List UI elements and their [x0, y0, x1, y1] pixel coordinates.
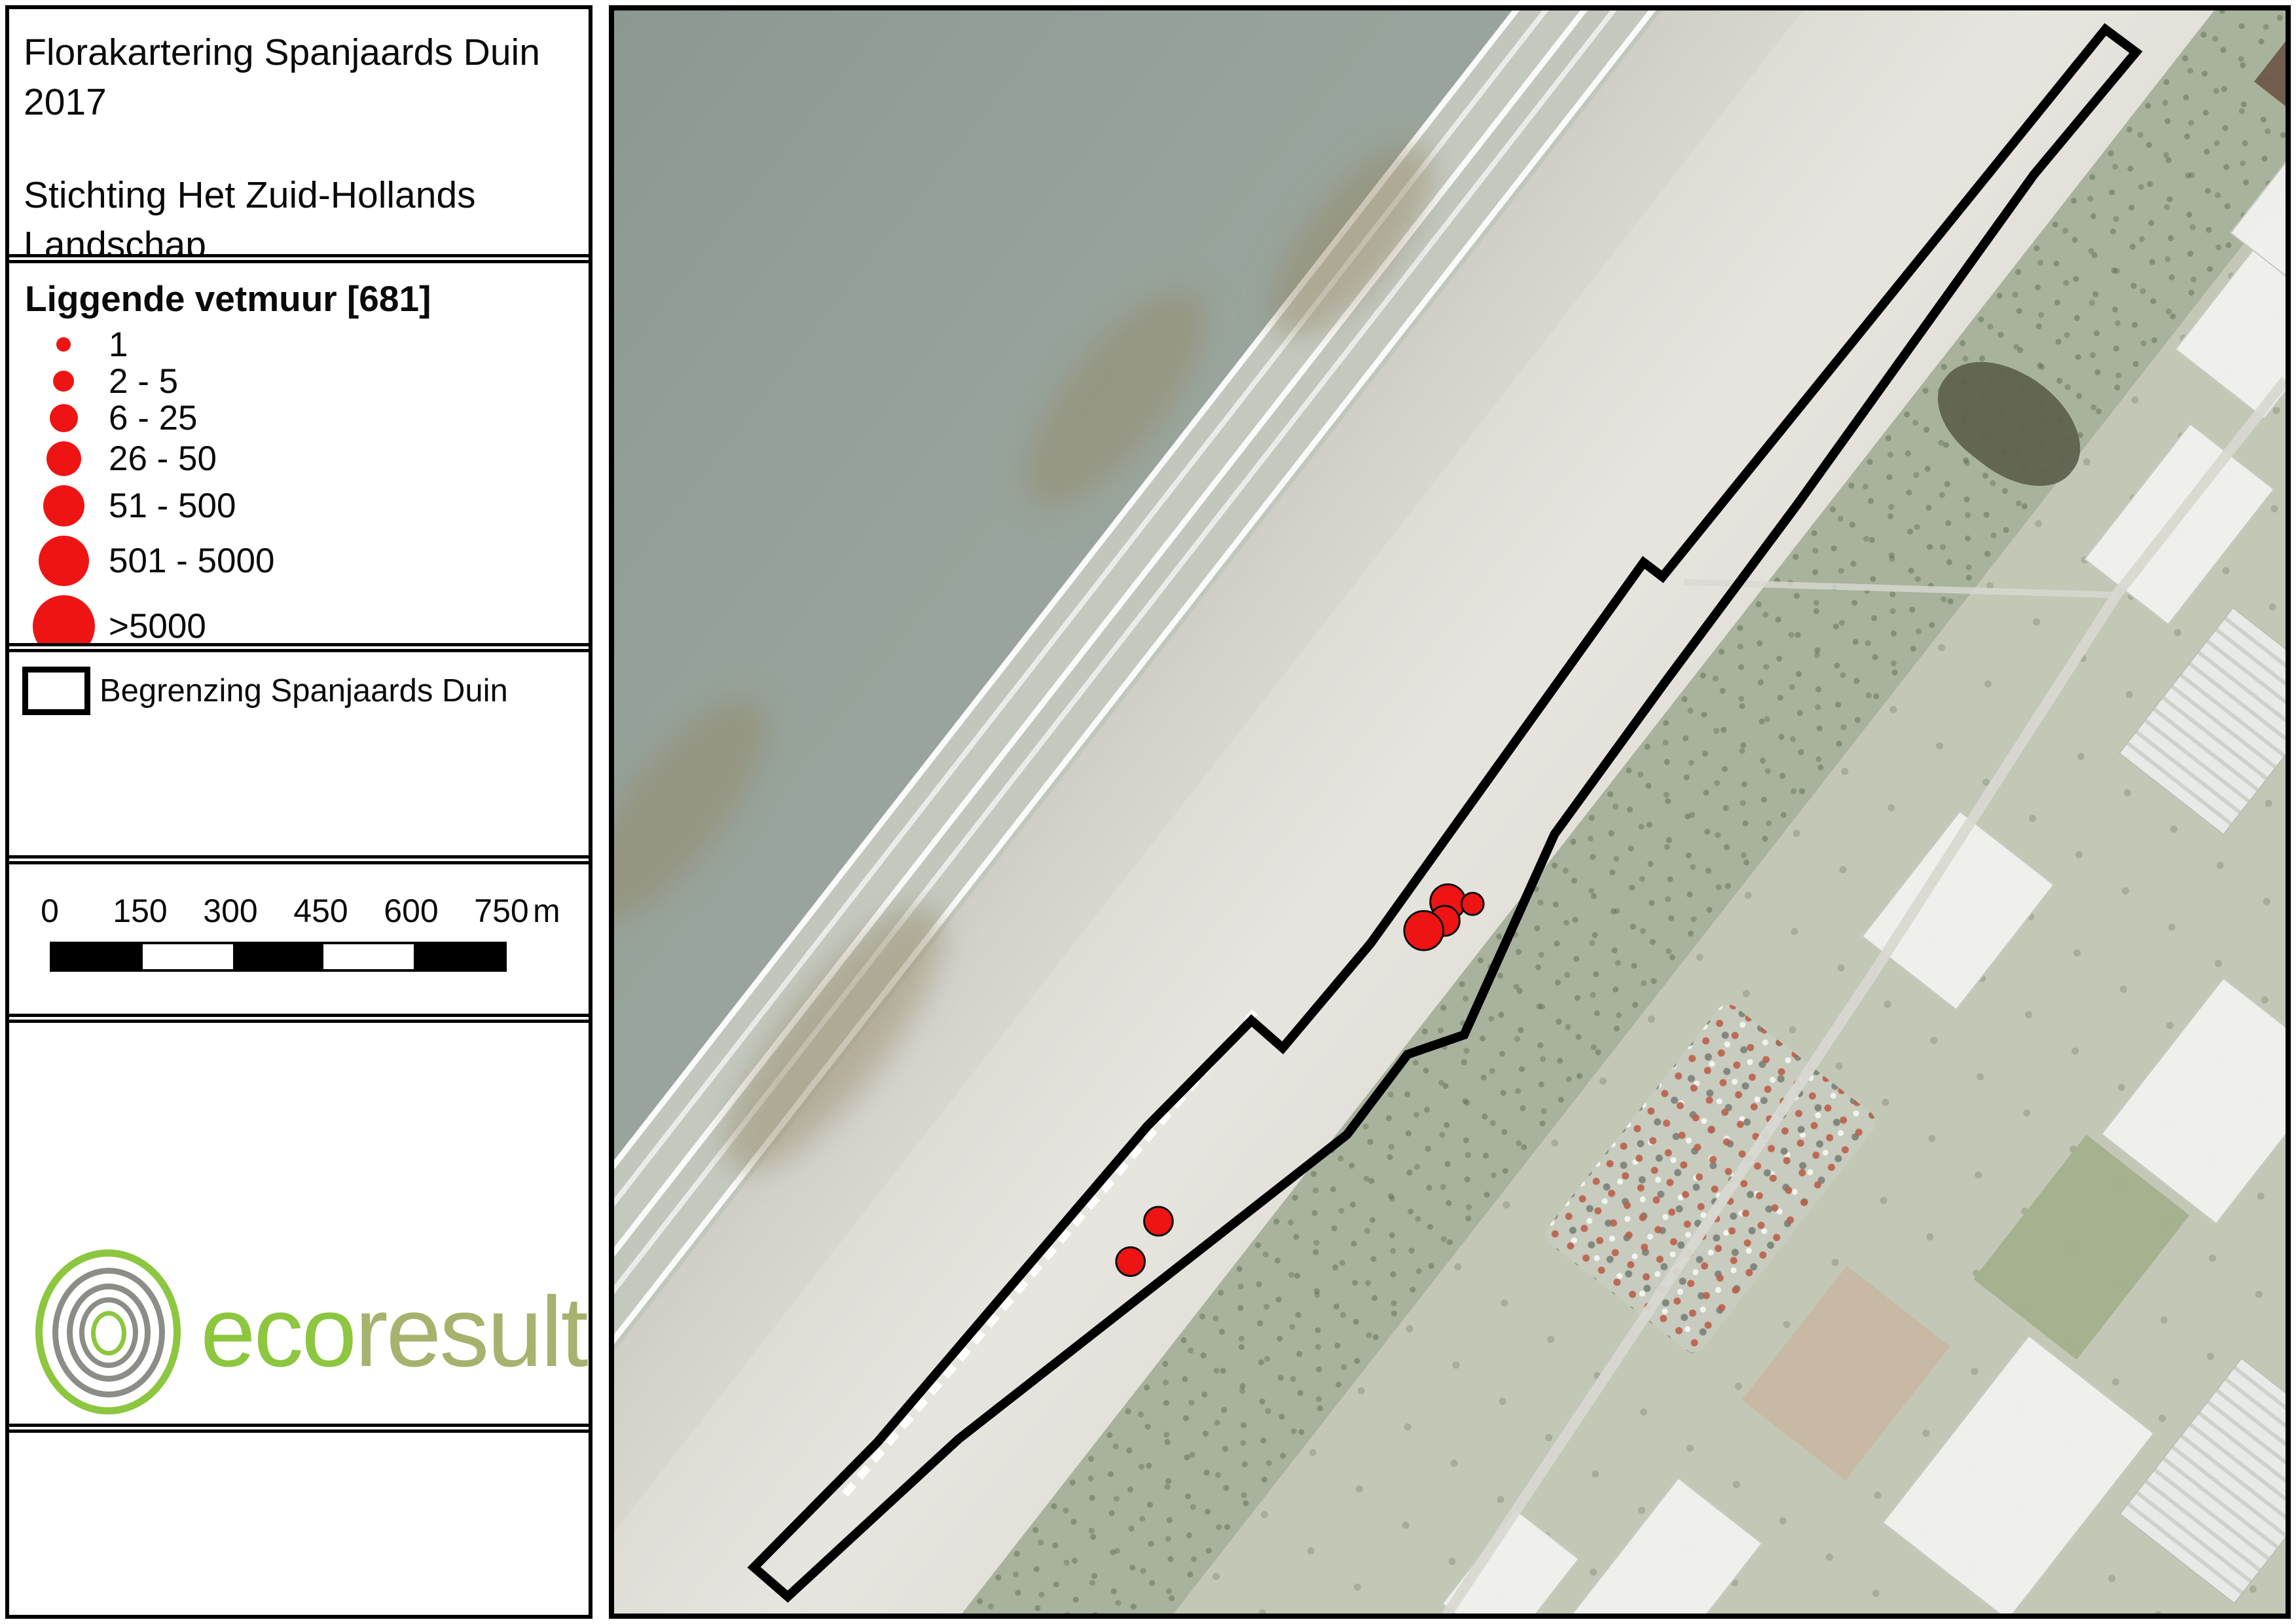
scale-bar-segment: [143, 944, 233, 969]
legend-item-label: >5000: [109, 606, 206, 643]
legend-dot-icon: [53, 371, 74, 392]
scale-bar-segment: [233, 944, 323, 969]
road-line: [1684, 582, 2117, 595]
legend-item-label: 2 - 5: [109, 361, 178, 401]
observation-dot: [1116, 1247, 1145, 1276]
legend-item: 501 - 5000: [22, 531, 589, 591]
map-overlay: [614, 10, 2286, 1614]
legend-dot-icon: [56, 337, 71, 352]
scale-tick-label: 450: [293, 892, 348, 930]
legend-item: 51 - 500: [22, 481, 589, 531]
road-line: [1447, 380, 2286, 1614]
scale-tick-label: 750: [474, 892, 528, 930]
logo-ring-icon: [91, 1311, 126, 1356]
scale-bar-segment: [414, 944, 504, 969]
legend-item: 2 - 5: [22, 363, 589, 399]
boundary-label: Begrenzing Spanjaards Duin: [100, 673, 508, 709]
legend-dot-icon: [33, 595, 95, 643]
legend-item-label: 501 - 5000: [109, 541, 274, 581]
logo-wordmark: ecoresult: [200, 1280, 587, 1384]
legend-section: Liggende vetmuur [681] 12 - 56 - 2526 - …: [9, 263, 589, 643]
legend-item: 6 - 25: [22, 399, 589, 437]
left-panel: Florakartering Spanjaards Duin 2017 Stic…: [5, 5, 592, 1619]
observation-dot: [1144, 1207, 1173, 1236]
map-canvas: [609, 5, 2291, 1619]
organization-name: Stichting Het Zuid-Hollands Landschap: [24, 170, 574, 254]
scale-unit-label: m: [533, 892, 560, 930]
legend-item-label: 51 - 500: [109, 486, 236, 526]
legend-items: 12 - 56 - 2526 - 5051 - 500501 - 5000>50…: [22, 326, 589, 643]
title-section: Florakartering Spanjaards Duin 2017 Stic…: [9, 9, 589, 254]
legend-dot-icon: [46, 441, 81, 476]
scalebar-section: 0150300450600750m: [9, 864, 589, 1014]
legend-item: 26 - 50: [22, 437, 589, 481]
boundary-legend-section: Begrenzing Spanjaards Duin: [9, 652, 589, 855]
map-sheet: Florakartering Spanjaards Duin 2017 Stic…: [0, 0, 2296, 1624]
scale-bar-segment: [52, 944, 143, 969]
legend-item: 1: [22, 326, 589, 363]
boundary-polygon: [754, 29, 2136, 1596]
scale-bar-segment: [323, 944, 414, 969]
legend-dot-icon: [39, 536, 89, 586]
section-divider: [9, 1014, 589, 1023]
scale-tick-label: 150: [113, 892, 167, 930]
page-title: Florakartering Spanjaards Duin 2017: [24, 28, 574, 127]
section-divider: [9, 643, 589, 652]
scale-bar-segments: [50, 942, 507, 972]
section-divider: [9, 254, 589, 263]
scale-tick-label: 600: [384, 892, 438, 930]
logo-text-result: result: [355, 1276, 587, 1388]
section-divider: [9, 855, 589, 864]
boundary-legend-row: Begrenzing Spanjaards Duin: [22, 667, 575, 715]
observation-dot: [1404, 911, 1444, 950]
legend-item-label: 26 - 50: [109, 439, 217, 479]
legend-item: >5000: [22, 591, 589, 643]
scale-tick-label: 0: [41, 892, 59, 930]
logo-text-eco: eco: [200, 1276, 355, 1388]
legend-dot-icon: [43, 485, 84, 526]
scale-bar: 0150300450600750m: [50, 864, 501, 1014]
boundary-symbol: [22, 667, 90, 715]
legend-item-label: 1: [109, 325, 128, 365]
legend-title: Liggende vetmuur [681]: [25, 278, 589, 320]
observation-dot: [1461, 893, 1484, 915]
legend-item-label: 6 - 25: [109, 398, 198, 438]
logo-section: ecoresult: [9, 1023, 589, 1424]
scale-tick-label: 300: [203, 892, 257, 930]
empty-section: [9, 1433, 589, 1615]
section-divider: [9, 1424, 589, 1433]
legend-dot-icon: [50, 404, 78, 432]
